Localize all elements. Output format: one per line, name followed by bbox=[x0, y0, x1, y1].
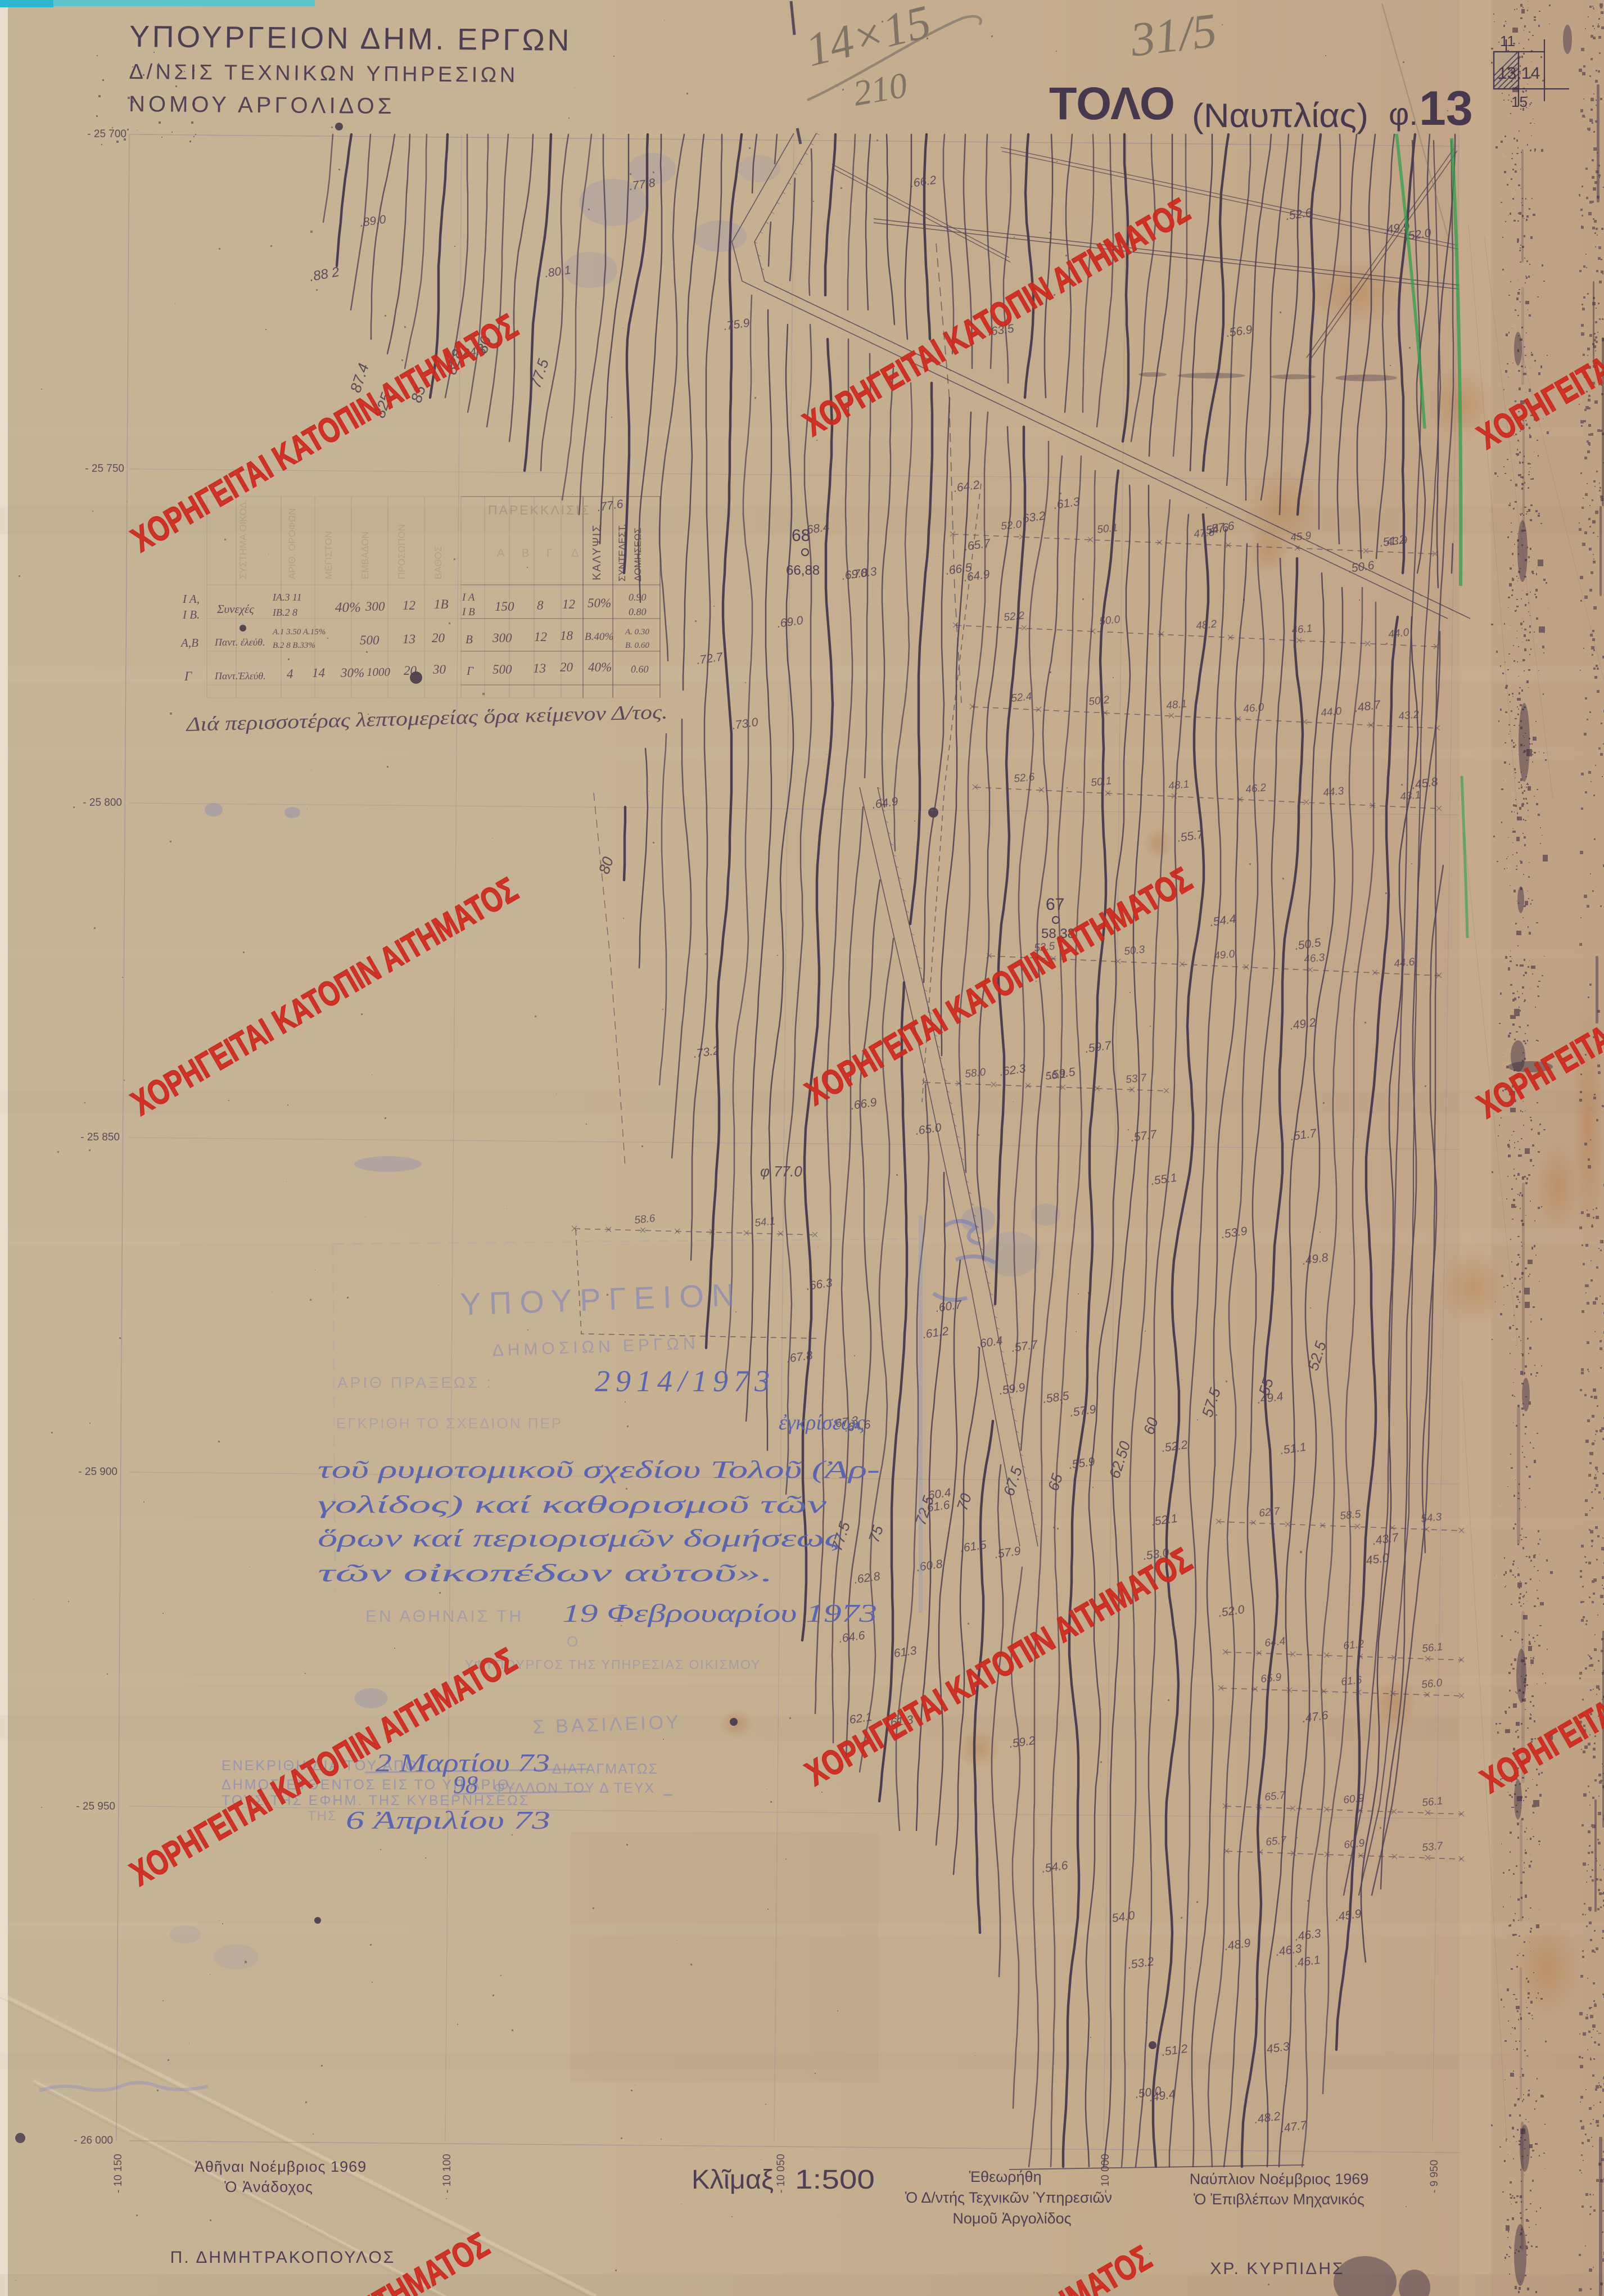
svg-text:4: 4 bbox=[287, 667, 293, 681]
svg-text:54.3: 54.3 bbox=[1420, 1511, 1442, 1525]
svg-text:Ναύπλιον Νοέμβριος 1969: Ναύπλιον Νοέμβριος 1969 bbox=[1190, 2171, 1369, 2187]
svg-text:13: 13 bbox=[533, 661, 546, 675]
svg-text:49.0: 49.0 bbox=[1213, 948, 1235, 962]
svg-text:Π. ΔΗΜΗΤΡΑΚΟΠΟΥΛΟΣ: Π. ΔΗΜΗΤΡΑΚΟΠΟΥΛΟΣ bbox=[170, 2248, 396, 2267]
svg-text:56.0: 56.0 bbox=[1421, 1677, 1443, 1691]
svg-text:11: 11 bbox=[1500, 33, 1515, 49]
svg-text:ΙΒ.2 8: ΙΒ.2 8 bbox=[272, 607, 297, 618]
svg-text:Παντ. ἐλεύθ.: Παντ. ἐλεύθ. bbox=[214, 637, 265, 648]
svg-text:τοῦ ρυμοτομικοῦ σχεδίου Τολοῦ: τοῦ ρυμοτομικοῦ σχεδίου Τολοῦ (Ἀρ- bbox=[318, 1456, 880, 1483]
svg-text:ὅρων καί περιορισμῶν δομήσεως: ὅρων καί περιορισμῶν δομήσεως bbox=[318, 1524, 842, 1552]
svg-text:1Β: 1Β bbox=[434, 597, 449, 611]
svg-text:ΑΡΙΘ ΠΡΑΞΕΩΣ :: ΑΡΙΘ ΠΡΑΞΕΩΣ : bbox=[337, 1374, 493, 1391]
svg-text:56.1: 56.1 bbox=[1421, 1641, 1443, 1655]
svg-text:- 10 100: - 10 100 bbox=[441, 2154, 453, 2193]
svg-text:52.4: 52.4 bbox=[1010, 691, 1032, 705]
svg-text:Ἀθῆναι Νοέμβριος 1969: Ἀθῆναι Νοέμβριος 1969 bbox=[195, 2158, 367, 2175]
svg-text:46.1: 46.1 bbox=[1291, 623, 1313, 637]
svg-text:Β: Β bbox=[466, 633, 473, 646]
svg-text:46.0: 46.0 bbox=[1242, 701, 1264, 715]
svg-text:Κλῖμαξ: Κλῖμαξ bbox=[692, 2165, 774, 2195]
svg-text:53.7: 53.7 bbox=[1421, 1840, 1444, 1854]
svg-text:52.6: 52.6 bbox=[1013, 771, 1035, 785]
svg-text:Ι Β.: Ι Β. bbox=[182, 608, 200, 621]
svg-text:500: 500 bbox=[360, 633, 379, 647]
svg-text:50%: 50% bbox=[588, 596, 611, 610]
svg-text:Ὁ Ἀνάδοχος: Ὁ Ἀνάδοχος bbox=[224, 2178, 313, 2195]
svg-text:ΔΟΜΗΣΕΩΣ: ΔΟΜΗΣΕΩΣ bbox=[632, 527, 643, 581]
svg-text:15: 15 bbox=[1511, 93, 1528, 110]
svg-text:53.7: 53.7 bbox=[1125, 1072, 1147, 1086]
svg-text:(Ναυπλίας): (Ναυπλίας) bbox=[1192, 97, 1368, 134]
svg-text:Β.40%: Β.40% bbox=[585, 631, 613, 643]
svg-text:ΤΟΛΟ: ΤΟΛΟ bbox=[1049, 78, 1175, 129]
svg-text:98: 98 bbox=[453, 1771, 478, 1798]
svg-text:Γ: Γ bbox=[546, 547, 553, 560]
svg-text:ΝΟΜΟΥ ΑΡΓΟΛΙΔΟΣ: ΝΟΜΟΥ ΑΡΓΟΛΙΔΟΣ bbox=[129, 92, 395, 119]
svg-text:52.2: 52.2 bbox=[1003, 610, 1025, 624]
svg-text:54.1: 54.1 bbox=[754, 1215, 776, 1229]
svg-text:ΕΓΚΡΙΘΗ ΤΟ ΣΧΕΔΙΟΝ ΠΕΡ: ΕΓΚΡΙΘΗ ΤΟ ΣΧΕΔΙΟΝ ΠΕΡ bbox=[336, 1415, 563, 1432]
svg-text:12: 12 bbox=[534, 630, 547, 644]
svg-text:65.7: 65.7 bbox=[1264, 1789, 1286, 1803]
svg-text:12: 12 bbox=[403, 598, 415, 612]
svg-text:50.1: 50.1 bbox=[1096, 522, 1118, 536]
svg-text:ἐγκρίσεως: ἐγκρίσεως bbox=[779, 1411, 865, 1435]
svg-text:61.2: 61.2 bbox=[1343, 1638, 1364, 1652]
svg-text:- 10 050: - 10 050 bbox=[775, 2154, 787, 2193]
svg-text:ΑΡΙΘ. ΟΡΟΦΩΝ: ΑΡΙΘ. ΟΡΟΦΩΝ bbox=[287, 508, 297, 579]
svg-text:20: 20 bbox=[404, 664, 417, 678]
svg-text:14: 14 bbox=[312, 666, 325, 680]
svg-text:44.0: 44.0 bbox=[1388, 626, 1409, 640]
svg-text:Συνεχές: Συνεχές bbox=[216, 602, 254, 616]
svg-text:40%: 40% bbox=[588, 660, 612, 674]
svg-text:Α. 0.30: Α. 0.30 bbox=[625, 628, 649, 637]
svg-text:48.1: 48.1 bbox=[1165, 698, 1187, 712]
svg-text:- 26 000: - 26 000 bbox=[74, 2135, 113, 2146]
svg-text:ΤΗΣ: ΤΗΣ bbox=[308, 1808, 337, 1824]
svg-text:31/5: 31/5 bbox=[1127, 3, 1219, 67]
svg-text:Ὁ Ἐπιβλέπων Μηχανικός: Ὁ Ἐπιβλέπων Μηχανικός bbox=[1194, 2191, 1364, 2208]
svg-text:58.6: 58.6 bbox=[634, 1212, 656, 1226]
svg-text:30: 30 bbox=[432, 662, 446, 676]
svg-text:50.3: 50.3 bbox=[1123, 944, 1145, 958]
svg-text:14: 14 bbox=[1521, 64, 1540, 83]
svg-text:ΠΑΡΕΚΚΛΙΣΙΣ: ΠΑΡΕΚΚΛΙΣΙΣ bbox=[488, 503, 591, 517]
svg-text:Β.2 8 Β.33%: Β.2 8 Β.33% bbox=[273, 641, 315, 650]
svg-text:150: 150 bbox=[495, 599, 514, 614]
svg-text:- 25 950: - 25 950 bbox=[76, 1801, 115, 1812]
svg-text:43.1: 43.1 bbox=[1399, 789, 1421, 803]
svg-text:ΕΝ ΑΘΗΝΑΙΣ ΤΗ: ΕΝ ΑΘΗΝΑΙΣ ΤΗ bbox=[365, 1607, 523, 1626]
svg-text:φ 77.0: φ 77.0 bbox=[760, 1163, 802, 1180]
svg-text:Ὁ Δ/ντής Τεχνικῶν Ὑπηρεσιῶν: Ὁ Δ/ντής Τεχνικῶν Ὑπηρεσιῶν bbox=[905, 2189, 1112, 2206]
svg-text:60.9: 60.9 bbox=[1343, 1837, 1365, 1851]
svg-text:56.1: 56.1 bbox=[1421, 1795, 1443, 1809]
svg-text:46.3: 46.3 bbox=[1303, 951, 1325, 966]
svg-text:8: 8 bbox=[537, 598, 544, 612]
svg-text:γολίδος) καί καθορισμοῦ τῶν: γολίδος) καί καθορισμοῦ τῶν bbox=[318, 1491, 827, 1518]
svg-text:Ι Α: Ι Α bbox=[462, 592, 475, 603]
svg-text:50.0: 50.0 bbox=[1099, 614, 1120, 628]
svg-text:43.2: 43.2 bbox=[1398, 709, 1420, 723]
svg-text:300: 300 bbox=[365, 599, 385, 614]
svg-text:ΚΑΛΥΨΙΣ: ΚΑΛΥΨΙΣ bbox=[591, 524, 603, 580]
svg-text:65.9: 65.9 bbox=[1260, 1671, 1282, 1685]
svg-text:Νομοῦ Ἀργολίδος: Νομοῦ Ἀργολίδος bbox=[952, 2210, 1071, 2227]
svg-text:58.0: 58.0 bbox=[964, 1066, 986, 1080]
svg-text:68: 68 bbox=[792, 526, 810, 545]
svg-text:19 Φεβρουαρίου 1973: 19 Φεβρουαρίου 1973 bbox=[562, 1599, 877, 1627]
svg-text:Δ/ΝΣΙΣ ΤΕΧΝΙΚΩΝ ΥΠΗΡΕΣΙΩΝ: Δ/ΝΣΙΣ ΤΕΧΝΙΚΩΝ ΥΠΗΡΕΣΙΩΝ bbox=[129, 60, 518, 87]
svg-text:Παντ.Ἐλεύθ.: Παντ.Ἐλεύθ. bbox=[214, 670, 266, 682]
svg-text:44.6: 44.6 bbox=[1393, 956, 1415, 970]
svg-text:0.80: 0.80 bbox=[629, 606, 647, 617]
svg-text:ΠΡΟΣΩΠΟΝ: ΠΡΟΣΩΠΟΝ bbox=[396, 524, 407, 579]
svg-text:20: 20 bbox=[432, 631, 445, 645]
svg-text:61.6: 61.6 bbox=[1340, 1674, 1362, 1688]
svg-text:50.2: 50.2 bbox=[1088, 694, 1110, 708]
svg-text:40%: 40% bbox=[335, 600, 361, 615]
svg-text:66,88: 66,88 bbox=[786, 563, 820, 578]
svg-text:- 10 000: - 10 000 bbox=[1100, 2154, 1111, 2193]
svg-text:58.5: 58.5 bbox=[1339, 1508, 1361, 1522]
svg-text:65.7: 65.7 bbox=[1265, 1834, 1287, 1848]
svg-text:Ο: Ο bbox=[567, 1633, 578, 1650]
svg-text:ΥΠΟΥΡΓΕΙΟΝ ΔΗΜ. ΕΡΓΩΝ: ΥΠΟΥΡΓΕΙΟΝ ΔΗΜ. ΕΡΓΩΝ bbox=[129, 20, 572, 57]
svg-text:ΒΑΘΟΣ: ΒΑΘΟΣ bbox=[433, 546, 444, 579]
svg-text:Γ: Γ bbox=[184, 669, 192, 683]
svg-text:2914/1973: 2914/1973 bbox=[595, 1364, 775, 1398]
svg-text:13: 13 bbox=[403, 632, 415, 646]
svg-text:Ι Α,: Ι Α, bbox=[182, 592, 200, 606]
svg-text:Δ: Δ bbox=[571, 547, 579, 560]
svg-text:ΣΥΣΤΗΜΑ ΟΙΚΟΔ.: ΣΥΣΤΗΜΑ ΟΙΚΟΔ. bbox=[238, 499, 248, 579]
svg-text:- 25 750: - 25 750 bbox=[85, 463, 124, 475]
svg-text:- 25 850: - 25 850 bbox=[80, 1131, 120, 1143]
svg-text:46.2: 46.2 bbox=[1245, 782, 1267, 796]
svg-text:45.9: 45.9 bbox=[1290, 530, 1312, 544]
svg-text:ΙΑ.3 11: ΙΑ.3 11 bbox=[272, 592, 302, 603]
svg-text:0.60: 0.60 bbox=[631, 664, 649, 675]
svg-text:- 25 700: - 25 700 bbox=[87, 128, 126, 140]
svg-text:1:500: 1:500 bbox=[795, 2165, 875, 2195]
svg-text:Α,Β: Α,Β bbox=[180, 636, 198, 649]
svg-text:62.7: 62.7 bbox=[1258, 1505, 1281, 1519]
svg-text:44.3: 44.3 bbox=[1322, 785, 1344, 799]
svg-text:ΜΕΓΙΣΤΟΝ: ΜΕΓΙΣΤΟΝ bbox=[323, 531, 334, 579]
svg-text:Β: Β bbox=[522, 547, 529, 560]
svg-text:- 25 800: - 25 800 bbox=[83, 797, 122, 809]
svg-text:64.4: 64.4 bbox=[1264, 1635, 1286, 1649]
svg-text:Α.1 3.50 Α.15%: Α.1 3.50 Α.15% bbox=[272, 628, 326, 637]
svg-text:0.90: 0.90 bbox=[629, 592, 647, 603]
svg-text:ΣΥΝΤΕΛΕΣΤ.: ΣΥΝΤΕΛΕΣΤ. bbox=[617, 524, 627, 581]
svg-text:Ἐθεωρήθη: Ἐθεωρήθη bbox=[969, 2168, 1041, 2185]
svg-text:τῶν οἰκοπέδων αὐτοῦ».: τῶν οἰκοπέδων αὐτοῦ». bbox=[318, 1559, 773, 1587]
svg-text:ΕΜΒΑΔΟΝ: ΕΜΒΑΔΟΝ bbox=[360, 531, 370, 579]
svg-text:50.1: 50.1 bbox=[1090, 775, 1112, 789]
svg-text:Γ: Γ bbox=[466, 664, 474, 678]
svg-text:500: 500 bbox=[493, 662, 512, 676]
svg-text:Ι Β: Ι Β bbox=[462, 606, 475, 618]
svg-text:44.0: 44.0 bbox=[1320, 705, 1342, 719]
svg-text:48.1: 48.1 bbox=[1168, 778, 1190, 792]
svg-text:20: 20 bbox=[560, 660, 573, 674]
svg-text:12: 12 bbox=[562, 597, 575, 611]
svg-text:18: 18 bbox=[560, 629, 573, 643]
svg-text:- 10 150: - 10 150 bbox=[112, 2154, 124, 2193]
svg-text:48.2: 48.2 bbox=[1195, 618, 1217, 632]
svg-text:- 9 950: - 9 950 bbox=[1429, 2160, 1440, 2193]
svg-text:13: 13 bbox=[1419, 82, 1473, 136]
svg-text:30%: 30% bbox=[340, 666, 364, 680]
svg-text:1000: 1000 bbox=[367, 665, 391, 679]
svg-text:300: 300 bbox=[492, 631, 512, 645]
svg-text:67: 67 bbox=[1046, 895, 1064, 914]
svg-text:60.9: 60.9 bbox=[1343, 1792, 1364, 1806]
svg-text:6 Ἀπριλίου 73: 6 Ἀπριλίου 73 bbox=[346, 1806, 550, 1834]
svg-text:Α: Α bbox=[497, 547, 505, 560]
svg-text:Β. 0.60: Β. 0.60 bbox=[625, 641, 649, 650]
svg-text:ΧΡ. ΚΥΡΠΙΔΗΣ: ΧΡ. ΚΥΡΠΙΔΗΣ bbox=[1210, 2259, 1344, 2278]
svg-text:- 25 900: - 25 900 bbox=[78, 1466, 118, 1478]
